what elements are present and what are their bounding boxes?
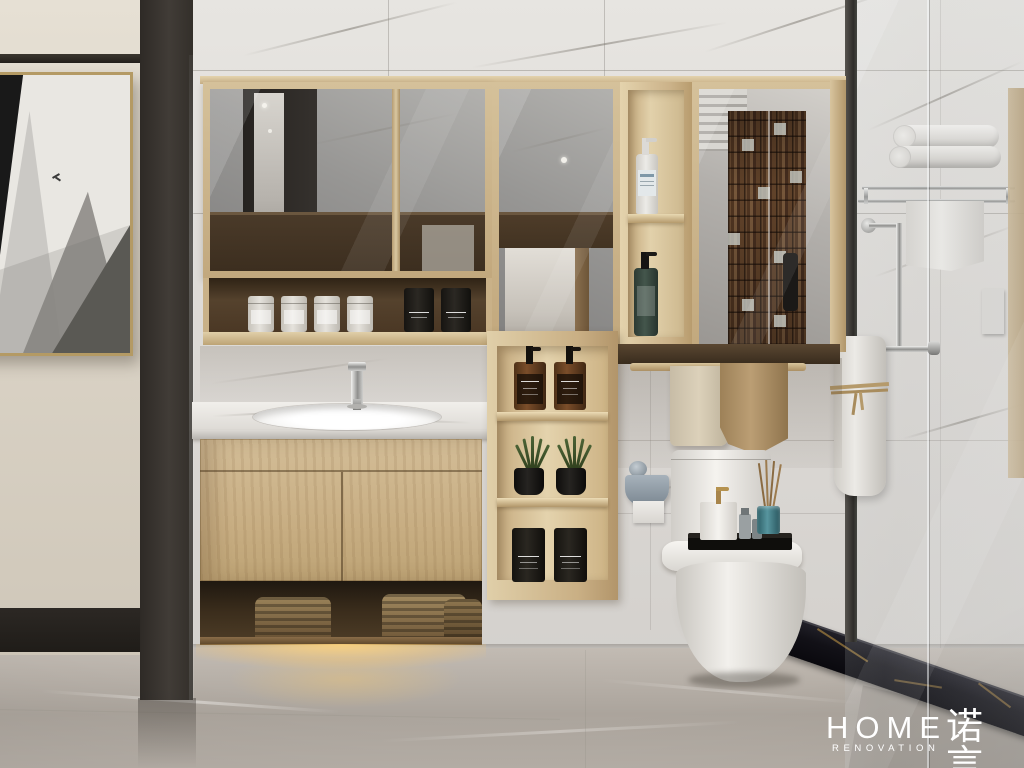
jar-label [350,310,370,324]
candle-label-line [518,556,539,557]
cabinet-side-panel [830,80,846,352]
toiletry-jar-white [248,296,274,332]
logo-subtitle: RENOVATION [832,744,939,754]
mirror-cabinet-right [692,82,838,352]
black-candle-jar [554,528,587,582]
label-accent [640,185,654,186]
logo-wordmark: HOME [826,712,947,743]
mirror-door-divider [392,89,400,271]
jar-label-line [411,317,427,318]
floor-tile-seam [585,650,586,768]
small-bottle-gray [739,514,751,539]
shelf-column-middle [487,331,618,600]
towel-bar-knob [928,341,940,355]
shelf-divider [628,214,684,223]
bottle-pump-spout [646,252,657,256]
toiletry-jar-black [441,288,471,332]
left-baseboard [0,608,140,652]
framed-artwork [0,72,133,356]
faucet-base [347,404,367,409]
hanging-towel-cream [670,366,728,446]
door-seam [341,472,343,581]
handle-pipe-vertical [896,223,902,351]
shelf-bottom-board [203,332,492,345]
floor-reflection-dark [138,698,196,768]
bottle-label [638,170,656,196]
sink-basin [253,404,441,430]
toilet-paper-sheet [633,501,664,523]
label-accent [640,174,654,177]
diffuser-jar-teal [757,506,780,534]
candle-label-line [561,568,580,569]
wall-tile-seam [388,0,389,82]
label-script [521,381,539,382]
candle-label-line [520,562,537,563]
mirror-sheen [210,89,485,271]
wall-molding [0,54,142,63]
glass-edge-highlight [189,55,194,700]
cabinet-soffit [618,344,840,364]
art-bird-mark [55,176,61,181]
jar-lid-line [314,303,340,304]
shelf-divider [497,498,608,507]
bottle-pump-spout [646,138,657,142]
storage-basket [255,597,331,637]
plant-pot [556,468,586,495]
label-script [561,381,579,382]
toiletry-jar-white [281,296,307,332]
vanity-cabinet [200,439,482,581]
amber-soap-bottle [554,362,586,410]
toiletry-jar-white [347,296,373,332]
jar-label-line [409,312,429,313]
jar-label [284,310,304,324]
mirror-door-left [210,89,485,271]
jar-label-line [446,312,466,313]
label-accent [640,181,654,182]
soap-dispenser [700,502,737,540]
amber-soap-bottle [514,362,546,410]
bottle-label [637,286,655,316]
mirror-sheen [499,89,613,339]
lotion-bottle-green [634,268,658,336]
dispenser-spout-gold [716,487,729,491]
glass-frame-edge [845,0,857,642]
mirror-cabinet-left [203,82,492,278]
bottle-label-dark [517,374,543,404]
bottle-label-dark [557,374,583,404]
wall-tile-seam [604,0,605,82]
lotion-bottle-white [636,154,658,214]
toilet-base-shadow [688,672,800,688]
tank-lid-seam [671,459,771,460]
label-script [523,388,537,389]
label-script [522,394,538,395]
mirror-door-middle [499,89,613,339]
label-script [563,388,577,389]
hanging-towel-tan [720,363,788,455]
jar-label [251,310,271,324]
partition-pillar [140,0,193,700]
jar-label-line [448,317,464,318]
jar-lid-line [347,303,373,304]
jar-lid-line [281,303,307,304]
bottle-pump-spout-black [571,347,581,351]
plant-pot [514,468,544,495]
brand-logo: HOME RENOVATION 诺言 [826,704,1022,762]
toiletry-jar-white [314,296,340,332]
black-candle-jar [512,528,545,582]
mirror-sheen [699,89,831,345]
mirror-door-right [699,89,831,345]
jar-lid-line [248,303,274,304]
vanity-open-shelf [200,581,482,637]
shelf-divider [497,412,608,421]
bottle-pump-spout-black [531,347,541,351]
small-bottle-cap [741,508,749,515]
logo-chinese: 诺言 [946,708,1022,768]
candle-label-line [560,556,581,557]
faucet-head [348,362,366,371]
candle-label-line [519,568,538,569]
counter-front-edge [192,430,494,439]
label-script [562,394,578,395]
toiletry-jar-black [404,288,434,332]
backsplash-shadow [200,346,492,404]
floor-light-glow [190,658,500,728]
glass-seam-shadow [929,0,930,768]
mirror-cabinet-middle [492,82,620,346]
bathroom-render: HOME RENOVATION 诺言 [0,0,1024,768]
storage-basket [444,599,482,637]
jar-label [317,310,337,324]
candle-label-line [562,562,579,563]
